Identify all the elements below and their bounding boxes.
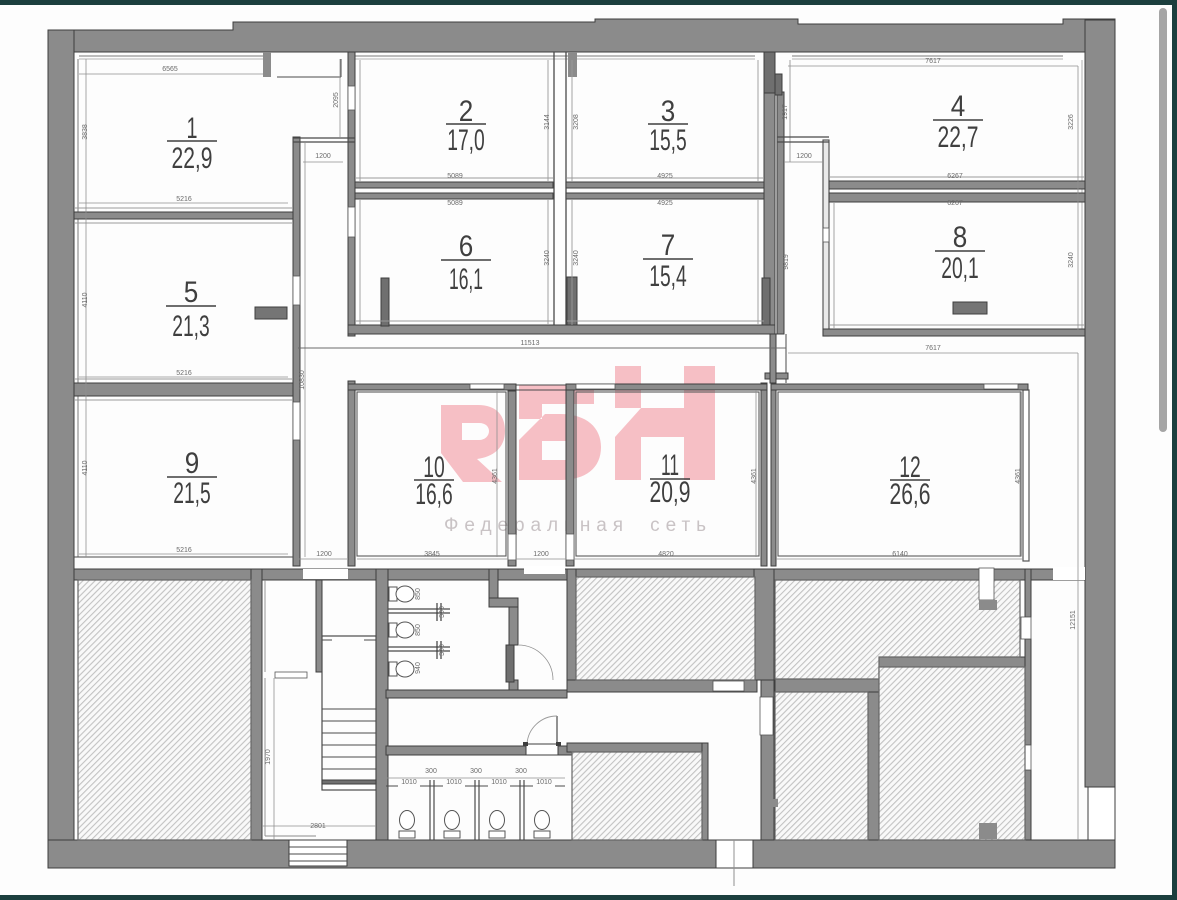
svg-text:5: 5 <box>184 276 199 309</box>
svg-text:17,0: 17,0 <box>447 124 485 157</box>
svg-text:15,4: 15,4 <box>649 260 687 293</box>
svg-text:1200: 1200 <box>796 153 812 160</box>
svg-text:300: 300 <box>439 606 446 618</box>
svg-text:6565: 6565 <box>162 66 178 73</box>
svg-text:26,6: 26,6 <box>890 478 931 511</box>
svg-text:4361: 4361 <box>1015 468 1022 484</box>
svg-text:16,1: 16,1 <box>449 263 483 296</box>
svg-text:1917: 1917 <box>782 104 789 120</box>
svg-text:850: 850 <box>415 588 422 600</box>
svg-text:6: 6 <box>459 230 474 263</box>
svg-text:Федеральная сеть: Федеральная сеть <box>444 515 712 536</box>
svg-text:4925: 4925 <box>657 173 673 180</box>
svg-text:8: 8 <box>953 221 968 254</box>
svg-text:5089: 5089 <box>447 173 463 180</box>
svg-text:300: 300 <box>470 768 482 775</box>
svg-text:850: 850 <box>415 624 422 636</box>
svg-text:1010: 1010 <box>401 779 417 786</box>
svg-text:2801: 2801 <box>310 823 326 830</box>
svg-text:6140: 6140 <box>892 551 908 558</box>
svg-text:20,9: 20,9 <box>650 476 691 509</box>
svg-text:1010: 1010 <box>446 779 462 786</box>
svg-text:3208: 3208 <box>573 114 580 130</box>
svg-text:1200: 1200 <box>316 551 332 558</box>
svg-text:7617: 7617 <box>925 58 941 65</box>
svg-text:11513: 11513 <box>521 340 540 347</box>
svg-text:1970: 1970 <box>265 749 272 765</box>
svg-text:9: 9 <box>185 447 200 480</box>
svg-text:3240: 3240 <box>1068 252 1075 268</box>
svg-text:1010: 1010 <box>491 779 507 786</box>
svg-text:4110: 4110 <box>82 292 89 307</box>
svg-text:1: 1 <box>187 112 198 145</box>
svg-text:16,6: 16,6 <box>415 478 453 511</box>
svg-text:4: 4 <box>951 90 966 123</box>
svg-text:5089: 5089 <box>447 200 463 207</box>
svg-text:6267: 6267 <box>947 173 963 180</box>
svg-text:4925: 4925 <box>657 200 673 207</box>
svg-text:5216: 5216 <box>176 196 192 203</box>
svg-text:1200: 1200 <box>315 153 331 160</box>
svg-text:5216: 5216 <box>176 547 192 554</box>
svg-text:940: 940 <box>415 662 422 674</box>
svg-text:12151: 12151 <box>1070 610 1077 630</box>
svg-text:4361: 4361 <box>492 468 499 484</box>
svg-text:20,1: 20,1 <box>941 252 979 285</box>
svg-text:22,7: 22,7 <box>938 121 979 154</box>
svg-text:21,3: 21,3 <box>172 310 210 343</box>
svg-text:22,9: 22,9 <box>172 142 213 175</box>
svg-text:3838: 3838 <box>82 124 89 140</box>
svg-text:300: 300 <box>439 644 446 656</box>
svg-text:4110: 4110 <box>82 460 89 475</box>
svg-text:7617: 7617 <box>925 345 941 352</box>
svg-text:7: 7 <box>661 229 676 262</box>
svg-text:3226: 3226 <box>1068 114 1075 130</box>
svg-text:3144: 3144 <box>544 114 551 130</box>
svg-text:300: 300 <box>425 768 437 775</box>
svg-text:4361: 4361 <box>751 468 758 484</box>
svg-text:10830: 10830 <box>299 370 306 390</box>
svg-text:1010: 1010 <box>536 779 552 786</box>
svg-text:6267: 6267 <box>947 200 963 207</box>
svg-text:1200: 1200 <box>533 551 549 558</box>
svg-text:15,5: 15,5 <box>649 124 687 157</box>
svg-text:3845: 3845 <box>424 551 440 558</box>
svg-text:21,5: 21,5 <box>173 477 211 510</box>
svg-text:4820: 4820 <box>658 551 674 558</box>
svg-text:9819: 9819 <box>783 254 790 270</box>
svg-text:3240: 3240 <box>573 250 580 266</box>
svg-text:5216: 5216 <box>176 370 192 377</box>
svg-text:3240: 3240 <box>544 250 551 266</box>
svg-text:300: 300 <box>515 768 527 775</box>
svg-text:2095: 2095 <box>333 92 340 108</box>
